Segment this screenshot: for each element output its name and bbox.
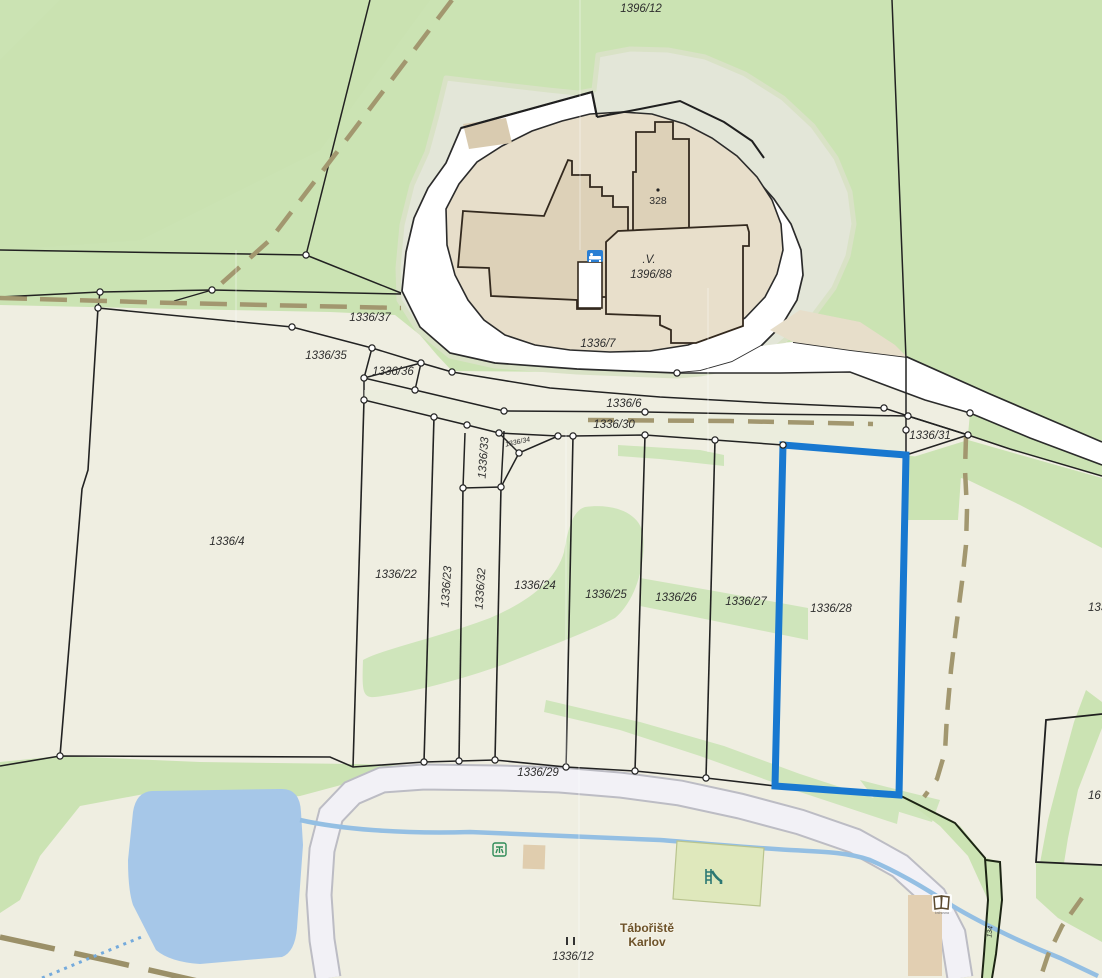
svg-text:1336/29: 1336/29 <box>517 767 559 779</box>
svg-text:1336/25: 1336/25 <box>585 589 627 601</box>
svg-text:Tábořiště: Tábořiště <box>620 921 674 935</box>
svg-text:1336/36: 1336/36 <box>372 366 414 378</box>
svg-text:1336/31: 1336/31 <box>909 430 951 442</box>
svg-text:1336/22: 1336/22 <box>375 569 417 581</box>
svg-text:Karlov: Karlov <box>628 935 666 949</box>
svg-text:134: 134 <box>986 926 994 938</box>
svg-text:1336/7: 1336/7 <box>580 338 616 350</box>
svg-text:1396/88: 1396/88 <box>630 269 672 281</box>
svg-text:1336: 1336 <box>1088 602 1102 614</box>
svg-text:1336/12: 1336/12 <box>552 951 594 963</box>
svg-text:1336/4: 1336/4 <box>209 536 244 548</box>
svg-text:1336/24: 1336/24 <box>514 580 556 592</box>
svg-text:.V.: .V. <box>642 254 655 266</box>
svg-text:328: 328 <box>649 195 667 207</box>
svg-text:1336/28: 1336/28 <box>810 603 852 615</box>
svg-text:1336/26: 1336/26 <box>655 592 697 604</box>
svg-text:1336/35: 1336/35 <box>305 350 347 362</box>
svg-text:16: 16 <box>1088 790 1101 802</box>
svg-text:1336/30: 1336/30 <box>593 419 635 431</box>
svg-text:knihovna: knihovna <box>935 911 949 915</box>
svg-text:1336/27: 1336/27 <box>725 596 767 608</box>
svg-text:1336/6: 1336/6 <box>606 398 642 410</box>
svg-text:1336/37: 1336/37 <box>349 312 391 324</box>
svg-text:1396/12: 1396/12 <box>620 3 662 15</box>
